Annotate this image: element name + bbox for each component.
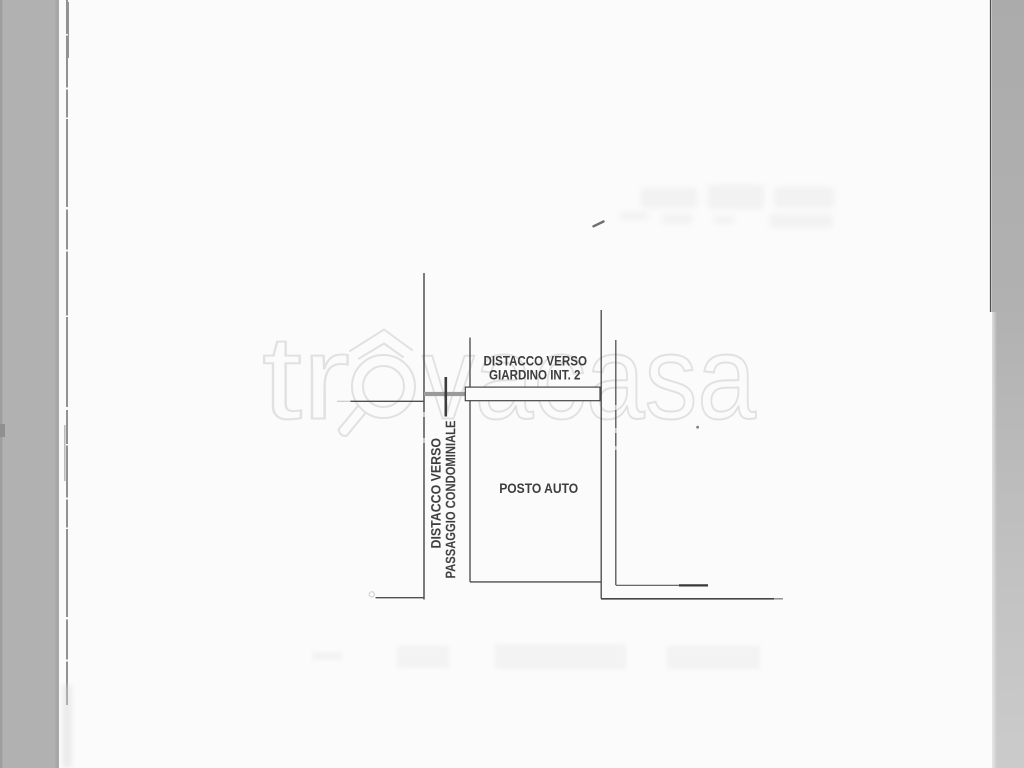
svg-text:vacasa: vacasa (422, 312, 757, 445)
svg-text:tr: tr (262, 312, 350, 445)
svg-text:GIARDINO INT. 2: GIARDINO INT. 2 (489, 368, 581, 384)
svg-text:DISTACCO VERSO: DISTACCO VERSO (429, 438, 445, 549)
svg-text:PASSAGGIO CONDOMINIALE: PASSAGGIO CONDOMINIALE (443, 421, 459, 579)
svg-text:POSTO AUTO: POSTO AUTO (499, 481, 578, 497)
